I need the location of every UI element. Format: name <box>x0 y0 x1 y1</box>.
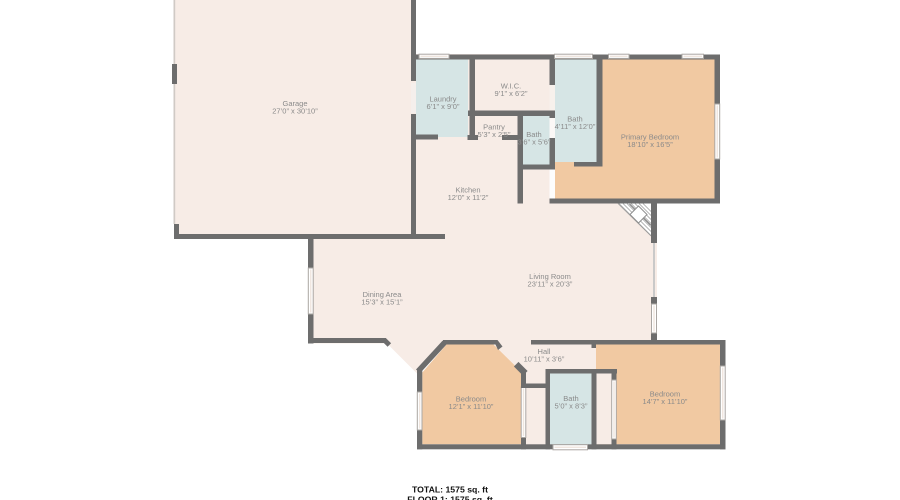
svg-text:23’11” x 20’3”: 23’11” x 20’3” <box>528 279 573 288</box>
svg-text:FLOOR 1: 1575 sq. ft: FLOOR 1: 1575 sq. ft <box>407 495 493 500</box>
svg-text:12’0” x 11’2”: 12’0” x 11’2” <box>448 193 489 202</box>
svg-text:3’6” x 5’6”: 3’6” x 5’6” <box>518 137 551 146</box>
svg-text:14’7” x 11’10”: 14’7” x 11’10” <box>643 397 688 406</box>
svg-text:27’0” x 30’10”: 27’0” x 30’10” <box>272 106 318 115</box>
svg-text:5’3” x 2’5”: 5’3” x 2’5” <box>478 130 511 139</box>
svg-text:18’10” x 16’5”: 18’10” x 16’5” <box>627 140 673 149</box>
svg-text:15’3” x 15’1”: 15’3” x 15’1” <box>361 297 403 306</box>
svg-text:12’1” x 11’10”: 12’1” x 11’10” <box>449 402 494 411</box>
svg-text:5’0” x 8’3”: 5’0” x 8’3” <box>555 401 588 410</box>
svg-text:6’1” x 9’0”: 6’1” x 9’0” <box>427 102 460 111</box>
svg-text:10’11” x 3’6”: 10’11” x 3’6” <box>524 354 565 363</box>
svg-text:TOTAL: 1575 sq. ft: TOTAL: 1575 sq. ft <box>412 485 488 495</box>
svg-text:4’11” x 12’0”: 4’11” x 12’0” <box>555 122 596 131</box>
svg-text:9’1” x 6’2”: 9’1” x 6’2” <box>495 89 528 98</box>
